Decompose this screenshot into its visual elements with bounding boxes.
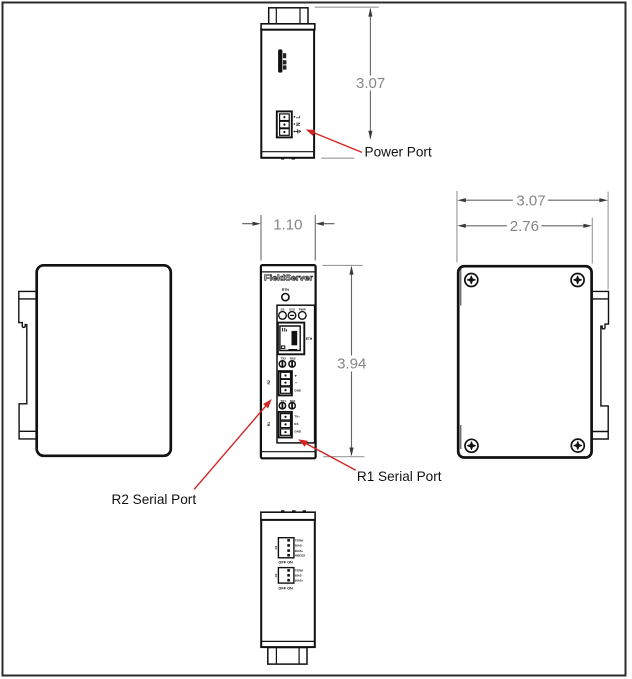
svg-text:SYS: SYS [289, 307, 295, 311]
svg-text:FieldServer: FieldServer [264, 273, 313, 282]
svg-text:TERM: TERM [295, 539, 304, 543]
svg-text:TX+: TX+ [294, 414, 300, 418]
svg-text:3.07: 3.07 [516, 192, 545, 209]
svg-text:BIAS+: BIAS+ [295, 579, 304, 583]
svg-text:3.07: 3.07 [356, 75, 385, 92]
svg-text:R1: R1 [267, 422, 271, 426]
svg-text:R2: R2 [267, 380, 271, 384]
svg-text:+: + [294, 374, 297, 379]
svg-text:GND: GND [294, 388, 302, 392]
svg-text:1.10: 1.10 [273, 217, 302, 234]
svg-text:Power Port: Power Port [365, 145, 432, 160]
svg-text:TX2: TX2 [280, 356, 286, 360]
svg-text:RX-: RX- [294, 422, 299, 426]
svg-text:2.76: 2.76 [510, 218, 539, 235]
svg-text:R1 Serial Port: R1 Serial Port [357, 469, 442, 484]
svg-text:BIAS-: BIAS- [295, 544, 303, 548]
svg-text:TERM: TERM [295, 569, 304, 573]
svg-text:−: − [295, 381, 298, 386]
svg-text:SS: SS [280, 307, 284, 311]
svg-text:PWR: PWR [299, 307, 307, 311]
svg-text:OFF ON: OFF ON [278, 561, 293, 565]
svg-text:ETH: ETH [306, 337, 313, 341]
svg-text:BIAS-: BIAS- [295, 574, 303, 578]
svg-text:R1: R1 [274, 573, 278, 577]
svg-text:N: N [296, 122, 302, 126]
svg-text:L: L [296, 115, 302, 118]
svg-text:GND: GND [294, 430, 302, 434]
svg-text:OFF ON: OFF ON [278, 587, 293, 591]
svg-text:485/232: 485/232 [295, 554, 306, 558]
svg-text:3.94: 3.94 [337, 355, 366, 372]
svg-text:BIAS+: BIAS+ [295, 549, 304, 553]
svg-text:R2 Serial Port: R2 Serial Port [112, 492, 197, 507]
svg-text:RTN: RTN [282, 288, 290, 292]
svg-text:R2: R2 [274, 545, 278, 549]
svg-text:RX2: RX2 [290, 356, 296, 360]
